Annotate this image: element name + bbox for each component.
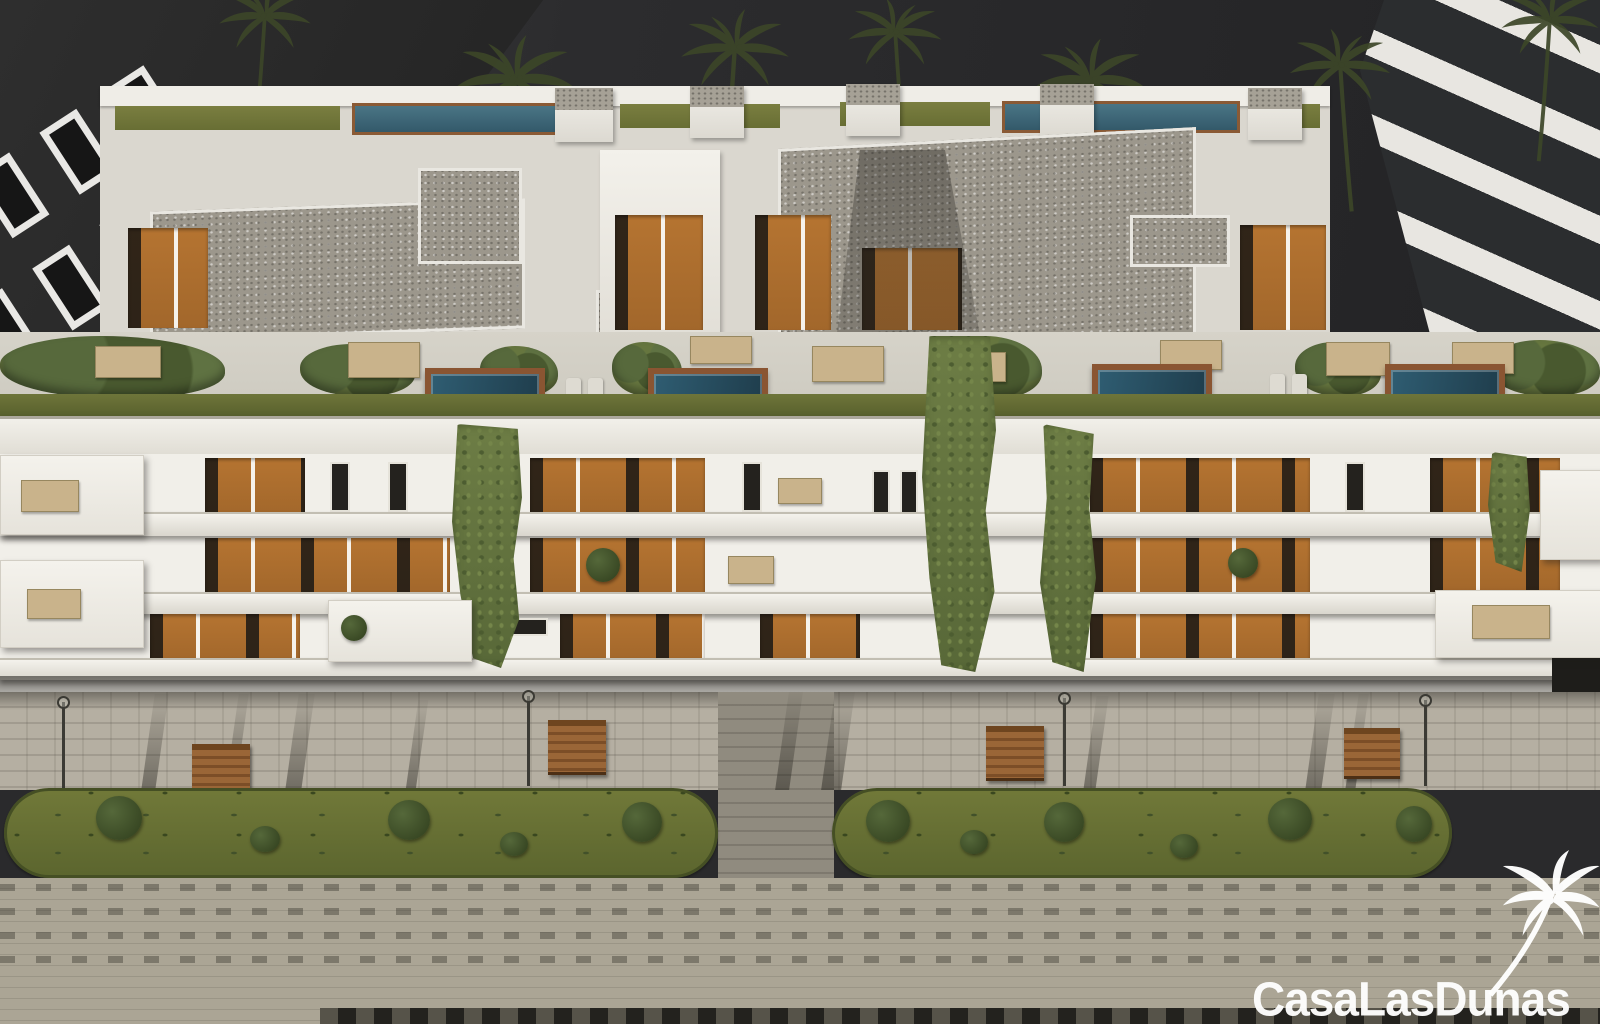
- terrace-slab: [0, 416, 1600, 457]
- timber-balcony-wall: [560, 614, 705, 662]
- balcony-dining-set: [21, 480, 79, 512]
- protruding-balcony: [0, 455, 144, 535]
- stair-tower: [690, 86, 744, 138]
- palm-tree-icon: [1480, 0, 1600, 164]
- tree-canopy: [622, 802, 662, 842]
- wooden-bench: [1344, 728, 1400, 779]
- render-canvas: CasaLasDunas: [0, 0, 1600, 1024]
- stair-tower: [1040, 84, 1094, 136]
- terrace-dining-set: [1326, 342, 1390, 376]
- watermark-brand-text: CasaLasDunas: [1252, 971, 1570, 1024]
- balcony-dining-set: [728, 556, 774, 584]
- timber-penthouse-wall: [755, 215, 831, 330]
- balcony-plant: [1228, 548, 1258, 578]
- terrace-dining-set: [95, 346, 161, 378]
- timber-balcony-wall: [1090, 614, 1310, 662]
- tree-canopy: [1044, 802, 1084, 842]
- lawn-island: [832, 788, 1452, 878]
- balcony-dining-set: [1472, 605, 1550, 639]
- timber-penthouse-wall: [1240, 225, 1326, 330]
- wooden-bench: [986, 726, 1044, 781]
- timber-balcony-wall: [150, 614, 300, 662]
- terrace-dining-set: [812, 346, 884, 382]
- roof-lawn: [115, 106, 340, 130]
- balcony-dining-set: [778, 478, 822, 504]
- rooftop-pool: [1002, 101, 1240, 133]
- window: [900, 470, 918, 514]
- protruding-balcony: [1435, 590, 1600, 658]
- tree-canopy: [388, 800, 430, 840]
- window: [32, 245, 109, 331]
- stair-tower: [1248, 88, 1302, 140]
- timber-balcony-wall: [1090, 458, 1310, 516]
- balcony-plant: [341, 615, 367, 641]
- shrub: [960, 830, 988, 854]
- stair-tower: [846, 84, 900, 136]
- window: [872, 470, 890, 514]
- tree-canopy: [866, 800, 910, 842]
- balcony-plant: [586, 548, 620, 582]
- window: [1345, 462, 1365, 512]
- balcony-slab: [0, 512, 1600, 536]
- paver-row: [0, 956, 1600, 963]
- window: [388, 462, 408, 512]
- protruding-balcony: [1540, 470, 1600, 560]
- gravel-roof: [418, 168, 522, 264]
- terrace-sofa: [690, 336, 752, 364]
- paver-row: [0, 932, 1600, 939]
- street-lamp: [62, 702, 65, 790]
- timber-balcony-wall: [530, 458, 705, 516]
- balcony-slab: [0, 592, 1600, 614]
- window: [0, 152, 49, 238]
- paver-row: [0, 908, 1600, 915]
- terrace-edge-lawn: [0, 394, 1600, 418]
- street-lamp: [1063, 698, 1066, 786]
- timber-penthouse-wall: [615, 215, 703, 330]
- street-lamp: [1424, 700, 1427, 786]
- tree-canopy: [1396, 806, 1432, 842]
- wooden-bench: [548, 720, 606, 775]
- paver-row: [0, 884, 1600, 891]
- timber-penthouse-wall: [128, 228, 208, 328]
- window: [742, 462, 762, 512]
- stair-tower: [555, 88, 613, 142]
- timber-balcony-wall: [1090, 538, 1310, 594]
- terrace-dining-set: [348, 342, 420, 378]
- tree-canopy: [1268, 798, 1312, 840]
- shrub: [250, 826, 280, 852]
- protruding-balcony: [0, 560, 144, 648]
- shrub: [1170, 834, 1198, 858]
- window: [330, 462, 350, 512]
- shrub: [500, 832, 528, 856]
- timber-balcony-wall: [205, 458, 305, 516]
- gravel-roof: [1130, 215, 1230, 267]
- timber-balcony-wall: [205, 538, 450, 594]
- protruding-balcony: [328, 600, 472, 662]
- balcony-dining-set: [27, 589, 81, 619]
- street-lamp: [527, 696, 530, 786]
- vertical-green-wall: [1040, 424, 1096, 672]
- tree-canopy: [96, 796, 142, 840]
- timber-balcony-wall: [760, 614, 860, 662]
